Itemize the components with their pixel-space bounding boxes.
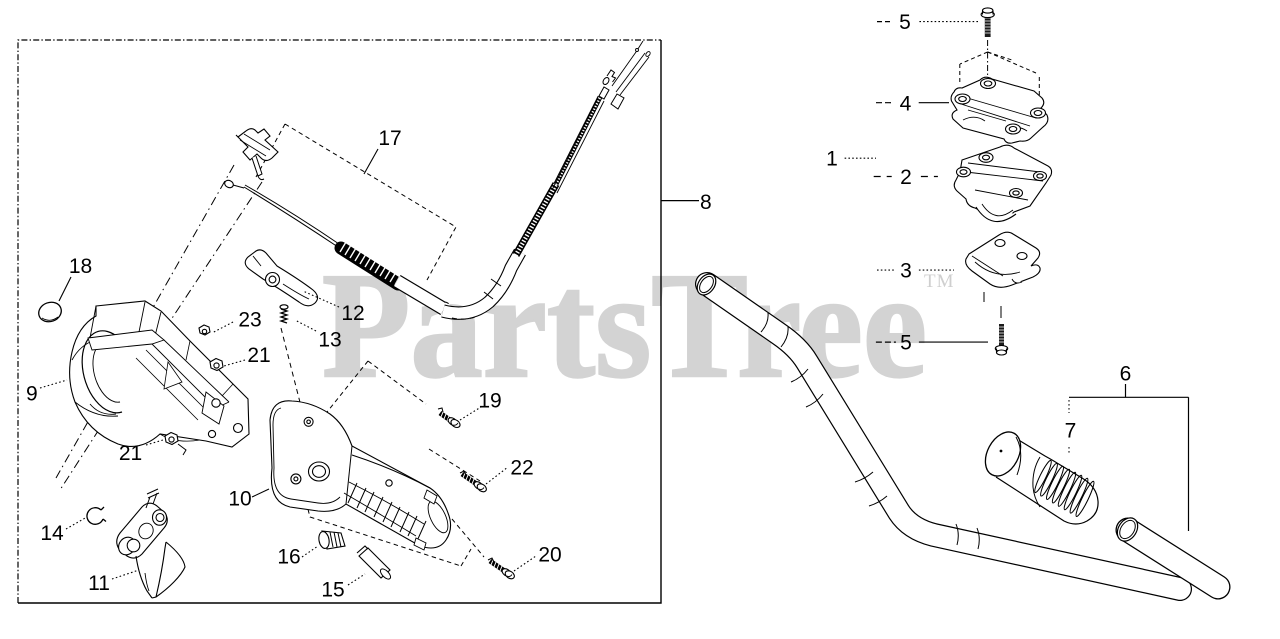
svg-text:6: 6 [1120,363,1132,386]
svg-text:1: 1 [826,148,838,171]
svg-text:11: 11 [88,572,110,595]
svg-text:8: 8 [700,191,712,214]
svg-text:21: 21 [119,442,142,465]
svg-text:9: 9 [26,383,38,406]
svg-text:14: 14 [40,522,64,545]
svg-text:3: 3 [900,260,912,283]
svg-text:12: 12 [341,302,364,325]
svg-text:16: 16 [277,546,300,569]
svg-text:2: 2 [900,166,912,189]
svg-text:19: 19 [478,390,501,413]
svg-text:23: 23 [238,309,261,332]
svg-text:17: 17 [378,127,401,150]
svg-text:PartsTree: PartsTree [322,241,927,409]
svg-text:13: 13 [318,329,341,352]
svg-text:4: 4 [900,92,912,115]
svg-text:21: 21 [247,344,270,367]
svg-text:10: 10 [228,488,251,511]
svg-text:15: 15 [321,579,344,602]
svg-text:5: 5 [900,332,912,355]
svg-text:TM: TM [924,271,955,292]
svg-text:7: 7 [1065,420,1077,443]
svg-text:5: 5 [899,11,911,34]
svg-text:18: 18 [69,255,92,278]
svg-text:22: 22 [510,457,533,480]
svg-text:20: 20 [538,544,561,567]
